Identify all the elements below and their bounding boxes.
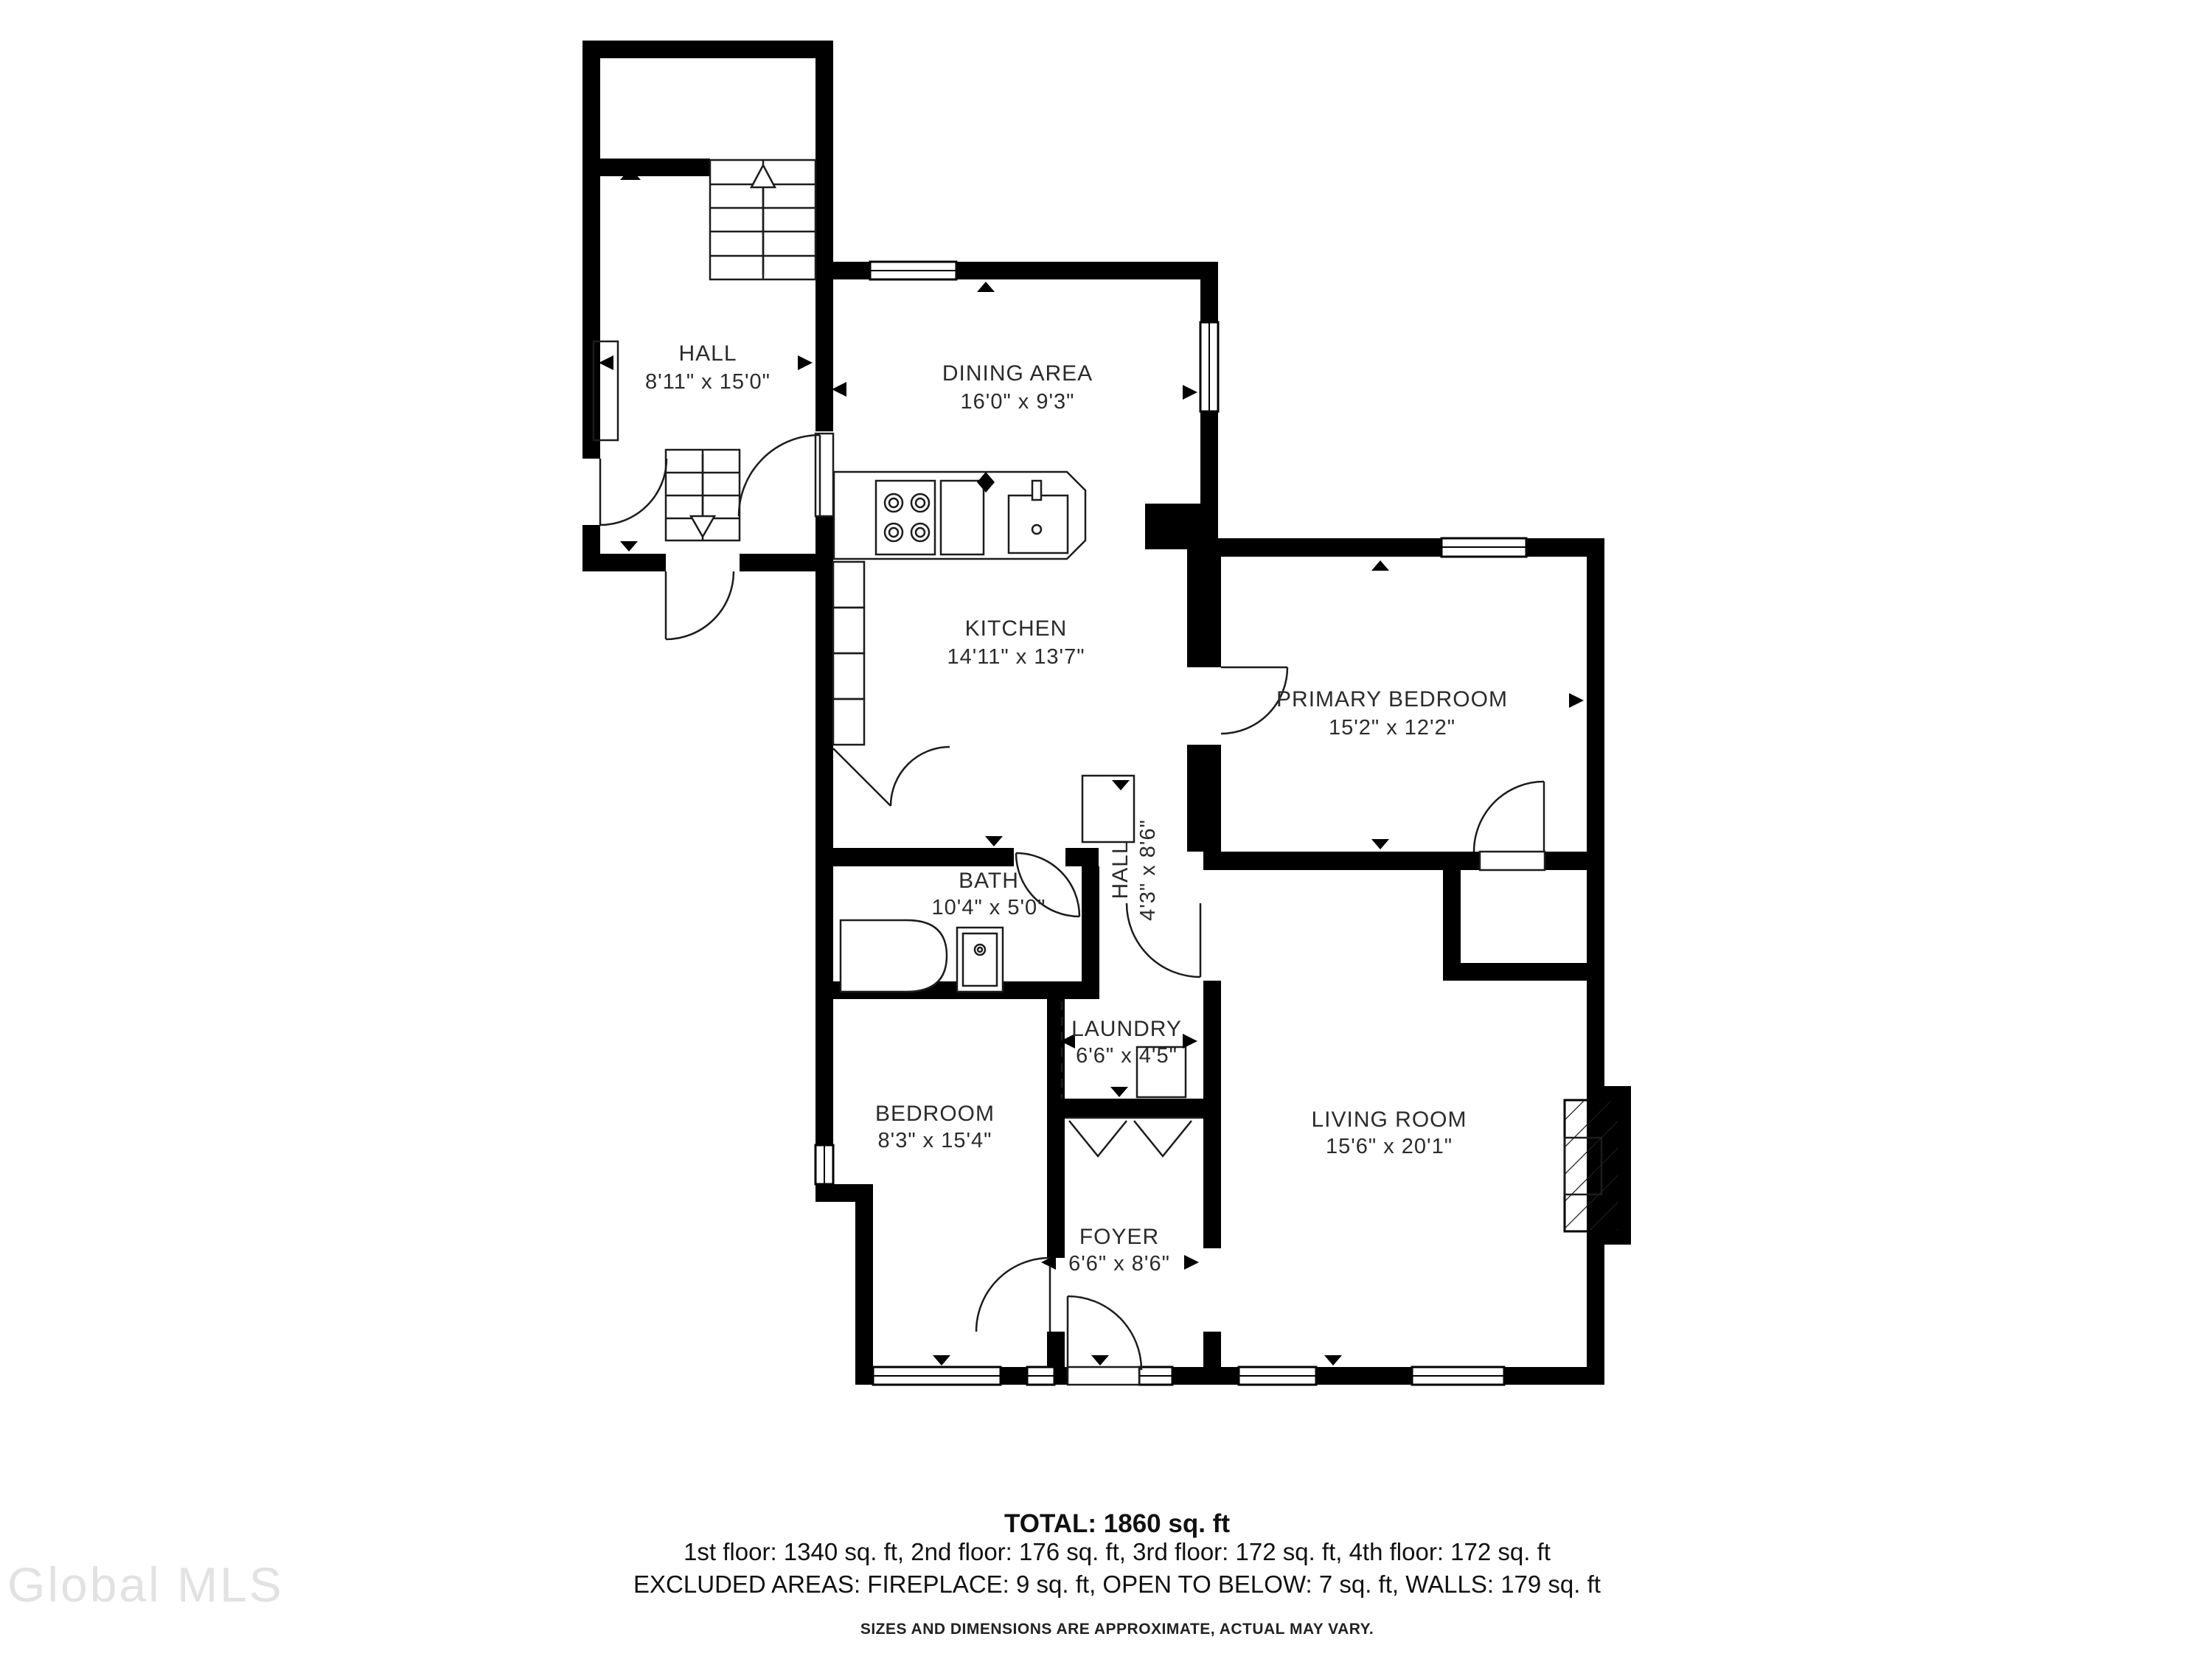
window-icon — [1200, 322, 1218, 411]
door-arc-icon — [739, 435, 820, 516]
room-dims-primary-bedroom: 15'2" x 12'2" — [1329, 716, 1455, 740]
window-icon — [870, 262, 956, 279]
room-label-living-room: LIVING ROOM — [1311, 1107, 1467, 1132]
room-dims-laundry: 6'6" x 4'5" — [1076, 1044, 1178, 1068]
walls — [582, 41, 1631, 1385]
window-icon — [1239, 1367, 1316, 1385]
room-dims-kitchen: 14'11" x 13'7" — [947, 645, 1085, 669]
window-icon — [1139, 1367, 1172, 1385]
door-arc-icon — [1474, 782, 1544, 852]
door-arc-icon — [833, 747, 950, 806]
floor-areas-text: 1st floor: 1340 sq. ft, 2nd floor: 176 s… — [684, 1538, 1551, 1565]
room-label-primary-bedroom: PRIMARY BEDROOM — [1276, 687, 1508, 712]
room-label-laundry: LAUNDRY — [1071, 1017, 1182, 1041]
wall-cabinets — [833, 562, 864, 745]
disclaimer-text: SIZES AND DIMENSIONS ARE APPROXIMATE, AC… — [860, 1621, 1374, 1638]
room-label-hall-upper: HALL — [678, 341, 737, 366]
counter-cabinet — [941, 481, 984, 554]
door-arc-icon — [976, 1258, 1050, 1332]
total-area-text: TOTAL: 1860 sq. ft — [1004, 1509, 1230, 1538]
window-icon — [1027, 1367, 1054, 1385]
windows — [815, 262, 1545, 1385]
window-icon — [1412, 1367, 1504, 1385]
room-dims-bath: 10'4" x 5'0" — [932, 896, 1046, 919]
fridge-icon — [1082, 776, 1134, 842]
stove-icon — [876, 481, 935, 554]
toilet-icon — [957, 928, 1003, 992]
room-dims-foyer: 6'6" x 8'6" — [1068, 1252, 1170, 1276]
door-arc-icon — [666, 571, 734, 639]
room-dims-living-room: 15'6" x 20'1" — [1326, 1135, 1453, 1158]
window-icon — [1441, 538, 1526, 557]
floorplan-canvas: HALL 8'11" x 15'0" DINING AREA 16'0" x 9… — [0, 0, 2212, 1659]
passage-arrows — [599, 168, 1584, 1366]
room-label-bath: BATH — [959, 869, 1019, 893]
bathtub-icon — [841, 920, 947, 992]
room-label-foyer: FOYER — [1079, 1225, 1159, 1249]
room-label-dining: DINING AREA — [942, 361, 1093, 386]
excluded-areas-text: EXCLUDED AREAS: FIREPLACE: 9 sq. ft, OPE… — [633, 1571, 1601, 1598]
fireplace-icon — [1565, 1100, 1619, 1231]
bath-fixtures — [841, 920, 1003, 992]
stairs-upper — [710, 160, 815, 279]
room-dims-hall-upper: 8'11" x 15'0" — [645, 370, 771, 394]
room-label-bedroom: BEDROOM — [875, 1102, 995, 1126]
doors — [600, 435, 1544, 1370]
window-icon — [873, 1367, 1001, 1385]
room-label-kitchen: KITCHEN — [965, 616, 1068, 641]
watermark-logo: Global MLS — [7, 1557, 284, 1612]
stairs-lower — [666, 450, 740, 540]
door-arc-icon — [600, 459, 667, 525]
summary-block: TOTAL: 1860 sq. ft 1st floor: 1340 sq. f… — [633, 1509, 1601, 1638]
door-threshold — [1068, 1367, 1139, 1385]
room-dims-bedroom: 8'3" x 15'4" — [878, 1129, 992, 1152]
closet-bifold-icon — [1065, 1118, 1203, 1156]
door-threshold — [815, 434, 833, 516]
room-dims-hall-corridor: 4'3" x 8'6" — [1136, 819, 1160, 921]
window-icon — [815, 1145, 833, 1184]
door-threshold — [1480, 852, 1545, 870]
room-label-hall-corridor: HALL — [1108, 841, 1133, 899]
room-dims-dining: 16'0" x 9'3" — [961, 390, 1075, 414]
